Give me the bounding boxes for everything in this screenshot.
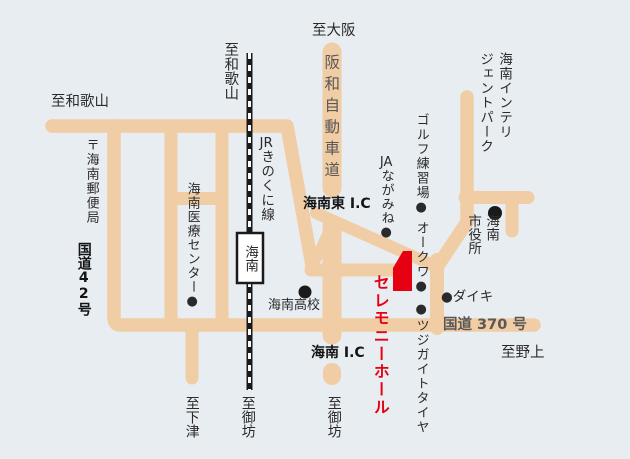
label-hanwa-expressway: 阪和自動車道 xyxy=(323,54,339,183)
label-daiki: ●ダイキ xyxy=(441,290,493,304)
label-jr-suffix: きのくに線 xyxy=(258,150,274,223)
label-to-shimotsu: 至下津 xyxy=(184,396,199,438)
label-kainan-station: 海南 xyxy=(237,233,263,283)
label-route-42: 国道42号 xyxy=(76,242,91,316)
label-okuwa: オークワ● xyxy=(414,221,428,296)
label-to-wakayama-rail: 至和歌山 xyxy=(222,42,237,100)
label-to-wakayama-road: 至和歌山 xyxy=(51,95,109,110)
label-ja-prefix: JA xyxy=(379,156,394,169)
label-kainan-ic: 海南 I.C xyxy=(311,346,365,361)
label-to-osaka: 至大阪 xyxy=(312,24,356,39)
map-canvas xyxy=(0,0,630,459)
label-ja-suffix: ながみね● xyxy=(379,169,394,241)
label-medical-center: 海南医療センター● xyxy=(185,182,199,310)
label-ja-nagamine: JAながみね● xyxy=(379,156,393,241)
ceremony-hall-marker xyxy=(393,251,412,291)
label-to-nogami: 至野上 xyxy=(501,346,545,361)
label-post-office: 〒海南郵便局 xyxy=(84,138,98,225)
label-ceremony-hall: セレモニーホール xyxy=(371,274,388,416)
label-kainan-high-school: 海南高校 xyxy=(268,299,320,313)
label-jr-prefix: JR xyxy=(258,136,274,150)
label-jr-kinokuni-line: JRきのくに線 xyxy=(259,136,273,222)
label-city-hall-line1: 海南 xyxy=(484,214,498,241)
label-tsujigaito-tire: ●ツジガイトタイヤ xyxy=(414,302,428,435)
label-golf-range: ゴルフ練習場● xyxy=(414,113,428,217)
road-intelligent-park xyxy=(437,97,467,267)
label-intelligent-park-line1: 海南インテリ xyxy=(497,52,511,139)
poi-dot-kainan-high-school xyxy=(299,286,312,299)
label-city-hall-line2: 市役所 xyxy=(466,214,480,255)
label-kainan-east-ic: 海南東 I.C xyxy=(303,197,371,212)
label-intelligent-park-line2: ジェントパーク xyxy=(478,52,492,154)
label-route-370: 国道 370 号 xyxy=(443,318,527,333)
label-to-gobo-road: 至御坊 xyxy=(326,396,341,438)
label-to-gobo-rail: 至御坊 xyxy=(240,396,255,438)
access-map: 至大阪 至和歌山 至和歌山 至野上 至下津 至御坊 至御坊 阪和自動車道 国道4… xyxy=(0,0,630,459)
